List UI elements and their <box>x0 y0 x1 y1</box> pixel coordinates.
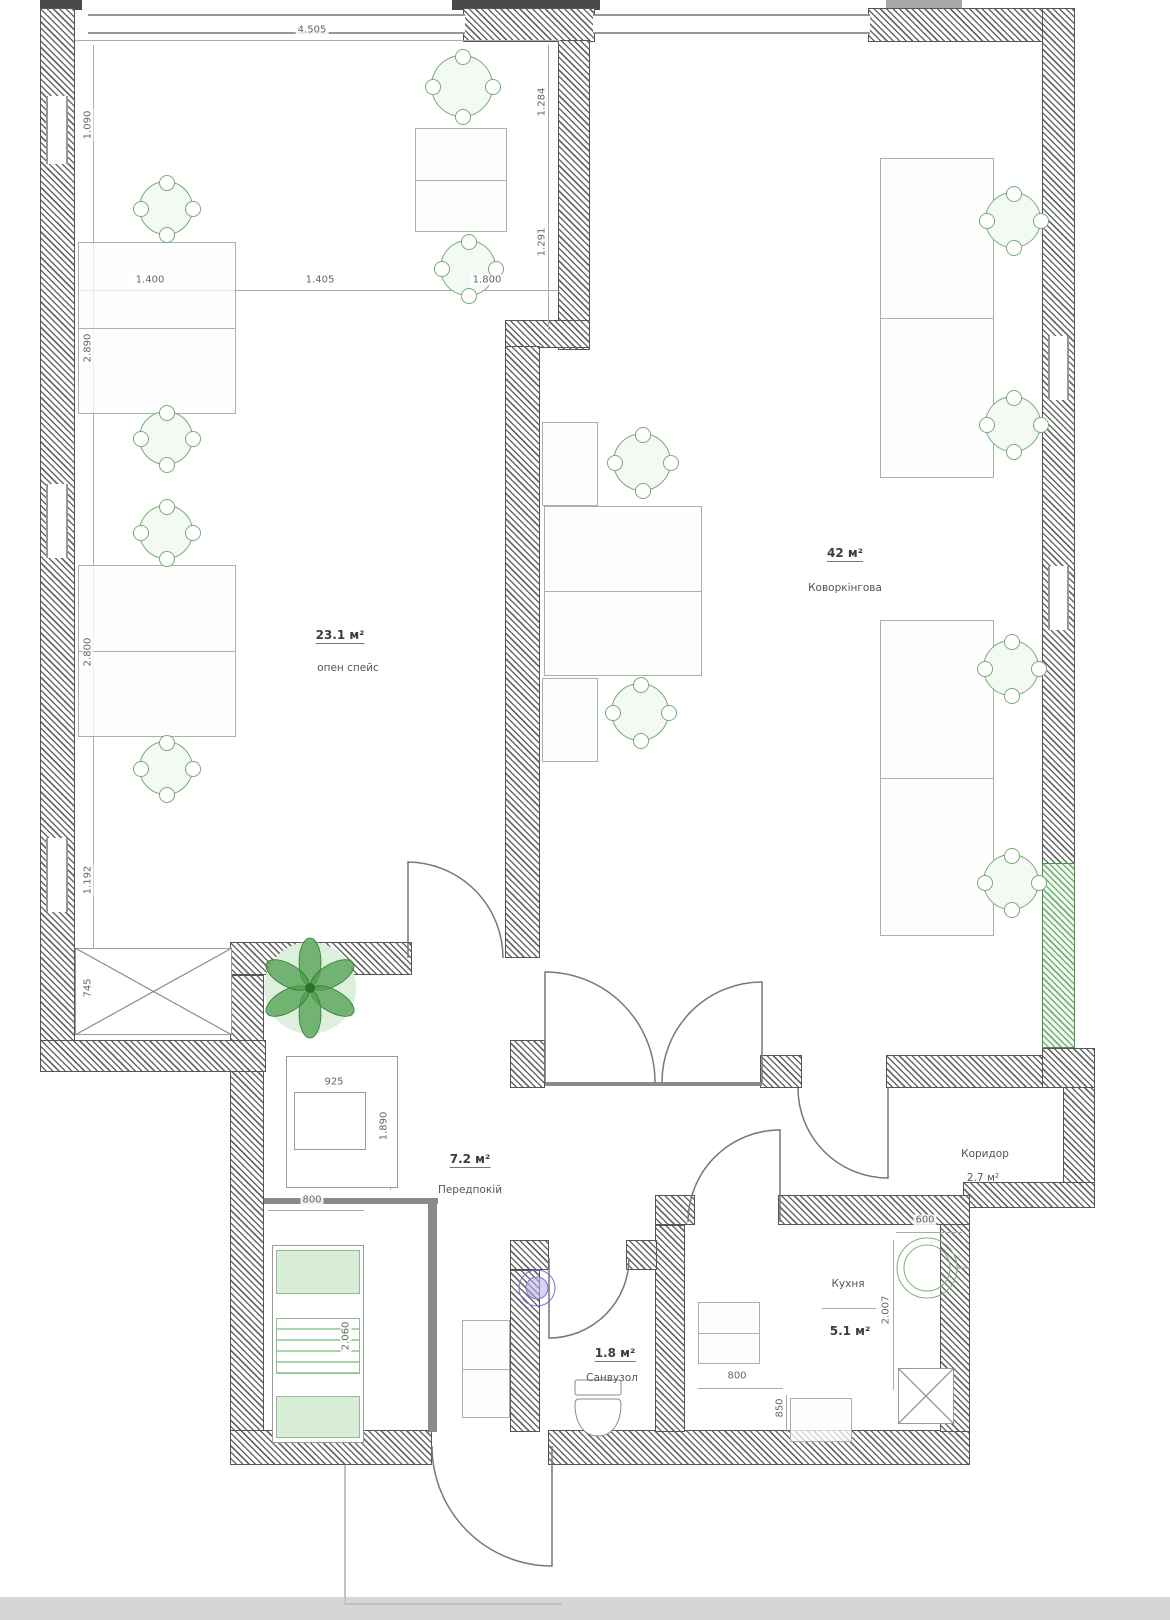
room-label-bathroom-area: 1.8 м² <box>595 1346 636 1362</box>
room-label-open-space-name: опен спейс <box>317 662 379 674</box>
room-label-corridor-name: Коридор <box>961 1148 1009 1160</box>
room-label-kitchen-name: Кухня <box>831 1278 864 1290</box>
desk <box>542 422 598 506</box>
office-chair-icon <box>139 181 193 235</box>
chair-lobe <box>1033 213 1049 229</box>
wall-segment <box>963 1182 1095 1208</box>
room-label-corridor-area: 2.7 м² <box>967 1172 999 1184</box>
toilet-icon <box>575 1380 621 1436</box>
dim-desk-w3: 1.800 <box>471 275 504 286</box>
room-label-hall-name: Передпокій <box>438 1184 502 1196</box>
desk-divider <box>699 1333 759 1334</box>
door-arc-coworking-left <box>545 972 655 1082</box>
chair-lobe <box>159 227 175 243</box>
wall-segment <box>548 1430 970 1465</box>
dimension-line <box>896 1232 962 1233</box>
desk <box>415 128 507 232</box>
dim-storage-h: 2.060 <box>341 1320 352 1353</box>
chair-lobe <box>607 455 623 471</box>
chair-lobe <box>159 735 175 751</box>
chair-lobe <box>1033 417 1049 433</box>
chair-lobe <box>1031 661 1047 677</box>
chair-lobe <box>133 761 149 777</box>
door-arc-open-space <box>408 862 503 958</box>
bottom-gray-bar <box>0 1597 1170 1620</box>
appliance-box <box>898 1368 954 1424</box>
partition-thin <box>264 1198 438 1204</box>
chair-lobe <box>1004 902 1020 918</box>
chair-lobe <box>605 705 621 721</box>
dim-desk-w1: 1.400 <box>134 275 167 286</box>
window <box>1048 336 1069 400</box>
wall-segment <box>463 8 595 42</box>
dim-kitchen-w: 800 <box>725 1371 748 1382</box>
wall-segment <box>626 1240 657 1270</box>
dim-left-v2: 2.890 <box>83 332 94 365</box>
chair-lobe <box>455 49 471 65</box>
door-arc-coworking-right <box>662 982 762 1082</box>
window <box>46 838 68 912</box>
wall-segment <box>505 346 540 958</box>
wall-segment <box>510 1040 545 1088</box>
chair-lobe <box>663 455 679 471</box>
door-arc-kitchen <box>688 1130 780 1222</box>
wall-segment <box>558 40 590 350</box>
storage-shelf-top <box>276 1250 360 1294</box>
chair-lobe <box>1006 186 1022 202</box>
desk-divider <box>463 1369 509 1370</box>
desk <box>698 1302 760 1364</box>
office-chair-icon <box>985 396 1041 452</box>
office-chair-icon <box>983 854 1039 910</box>
office-chair-icon <box>440 240 496 296</box>
chair-lobe <box>1031 875 1047 891</box>
dim-sink-w: 600 <box>913 1215 936 1226</box>
window <box>46 484 68 558</box>
wall-segment <box>655 1195 695 1225</box>
chair-lobe <box>1004 634 1020 650</box>
desk <box>78 242 236 414</box>
chair-lobe <box>159 405 175 421</box>
wall-segment <box>510 1240 549 1270</box>
wall-segment <box>1042 1048 1095 1088</box>
storage-shelf-bottom <box>276 1396 360 1438</box>
chair-lobe <box>455 109 471 125</box>
chair-lobe <box>159 175 175 191</box>
office-chair-icon <box>613 433 671 491</box>
dim-desk-w2: 1.405 <box>304 275 337 286</box>
shaft-box <box>75 948 232 1035</box>
desk-divider <box>881 318 993 319</box>
wall-segment <box>778 1195 970 1225</box>
desk-divider <box>881 778 993 779</box>
dim-top-width: 4.505 <box>296 25 329 36</box>
wall-segment <box>760 1055 802 1088</box>
chair-lobe <box>633 677 649 693</box>
chair-lobe <box>434 261 450 277</box>
chair-lobe <box>977 661 993 677</box>
chair-lobe <box>159 457 175 473</box>
chair-lobe <box>485 79 501 95</box>
desk-divider <box>79 651 235 652</box>
partition-thin <box>545 1082 762 1086</box>
desk <box>544 506 702 676</box>
desk-divider <box>416 180 506 181</box>
chair-lobe <box>635 427 651 443</box>
office-chair-icon <box>139 411 193 465</box>
chair-lobe <box>461 234 477 250</box>
dim-left-v3: 2.800 <box>83 636 94 669</box>
room-label-hall-area: 7.2 м² <box>450 1152 491 1168</box>
dim-bay-v1: 1.284 <box>537 86 548 119</box>
office-chair-icon <box>139 741 193 795</box>
office-chair-icon <box>139 505 193 559</box>
desk <box>462 1320 510 1418</box>
dim-closet-h: 1.890 <box>379 1110 390 1143</box>
chair-lobe <box>633 733 649 749</box>
desk <box>880 158 994 478</box>
wall-segment <box>510 1270 540 1432</box>
wall-segment <box>655 1225 685 1432</box>
chair-lobe <box>461 288 477 304</box>
room-label-open-space-area: 23.1 м² <box>316 628 365 644</box>
chair-lobe <box>159 499 175 515</box>
dimension-line <box>268 1210 364 1211</box>
partition-thin <box>428 1198 437 1432</box>
chair-lobe <box>1004 688 1020 704</box>
dim-left-v4: 1.192 <box>83 864 94 897</box>
dim-kitchen-right-h: 2.007 <box>881 1294 892 1327</box>
chair-lobe <box>979 213 995 229</box>
chair-lobe <box>133 201 149 217</box>
chair-lobe <box>133 431 149 447</box>
desk-divider <box>545 591 701 592</box>
chair-lobe <box>133 525 149 541</box>
chair-lobe <box>1006 390 1022 406</box>
dim-left-v1: 1.090 <box>83 109 94 142</box>
desk-divider <box>79 328 235 329</box>
chair-lobe <box>1006 444 1022 460</box>
wall-green-segment <box>1042 863 1075 1048</box>
desk <box>542 678 598 762</box>
window <box>46 96 68 164</box>
dimension-line <box>698 1388 783 1389</box>
entrance-step-lines <box>345 1465 562 1604</box>
dim-storage-w: 800 <box>300 1195 323 1206</box>
office-chair-icon <box>985 192 1041 248</box>
dim-kitchen-h: 850 <box>775 1396 786 1419</box>
chair-lobe <box>635 483 651 499</box>
chair-lobe <box>979 417 995 433</box>
dimension-line <box>548 45 549 330</box>
door-arc-corridor <box>798 1088 888 1178</box>
dim-bay-v2: 1.291 <box>537 226 548 259</box>
office-chair-icon <box>431 55 493 117</box>
room-label-kitchen-area: 5.1 м² <box>830 1324 871 1338</box>
dimension-line <box>893 1240 894 1390</box>
wall-segment <box>230 942 412 975</box>
desk <box>790 1398 852 1442</box>
dim-left-v5: 745 <box>83 976 94 999</box>
chair-lobe <box>185 761 201 777</box>
floor-plan-canvas: 23.1 м²опен спейс42 м²Коворкінгова7.2 м²… <box>0 0 1170 1620</box>
room-label-coworking-area: 42 м² <box>827 546 863 562</box>
chair-lobe <box>1004 848 1020 864</box>
wall-segment <box>40 1040 266 1072</box>
dimension-line <box>822 1308 876 1309</box>
office-chair-icon <box>983 640 1039 696</box>
dimension-line <box>75 40 560 41</box>
room-label-coworking-name: Коворкінгова <box>808 582 882 594</box>
chair-lobe <box>185 525 201 541</box>
window <box>1048 566 1069 630</box>
hall-wardrobe-inner <box>294 1092 366 1150</box>
chair-lobe <box>1006 240 1022 256</box>
chair-lobe <box>661 705 677 721</box>
door-arc-bathroom <box>549 1258 629 1338</box>
office-chair-icon <box>611 683 669 741</box>
chair-lobe <box>185 201 201 217</box>
chair-lobe <box>977 875 993 891</box>
chair-lobe <box>425 79 441 95</box>
dimension-line <box>786 1395 787 1432</box>
desk <box>78 565 236 737</box>
door-arc-entrance <box>432 1446 552 1566</box>
window <box>88 14 465 34</box>
chair-lobe <box>159 551 175 567</box>
dim-closet-w: 925 <box>322 1077 345 1088</box>
window <box>593 14 870 34</box>
chair-lobe <box>159 787 175 803</box>
chair-lobe <box>185 431 201 447</box>
room-label-bathroom-name: Санвузол <box>586 1372 638 1384</box>
